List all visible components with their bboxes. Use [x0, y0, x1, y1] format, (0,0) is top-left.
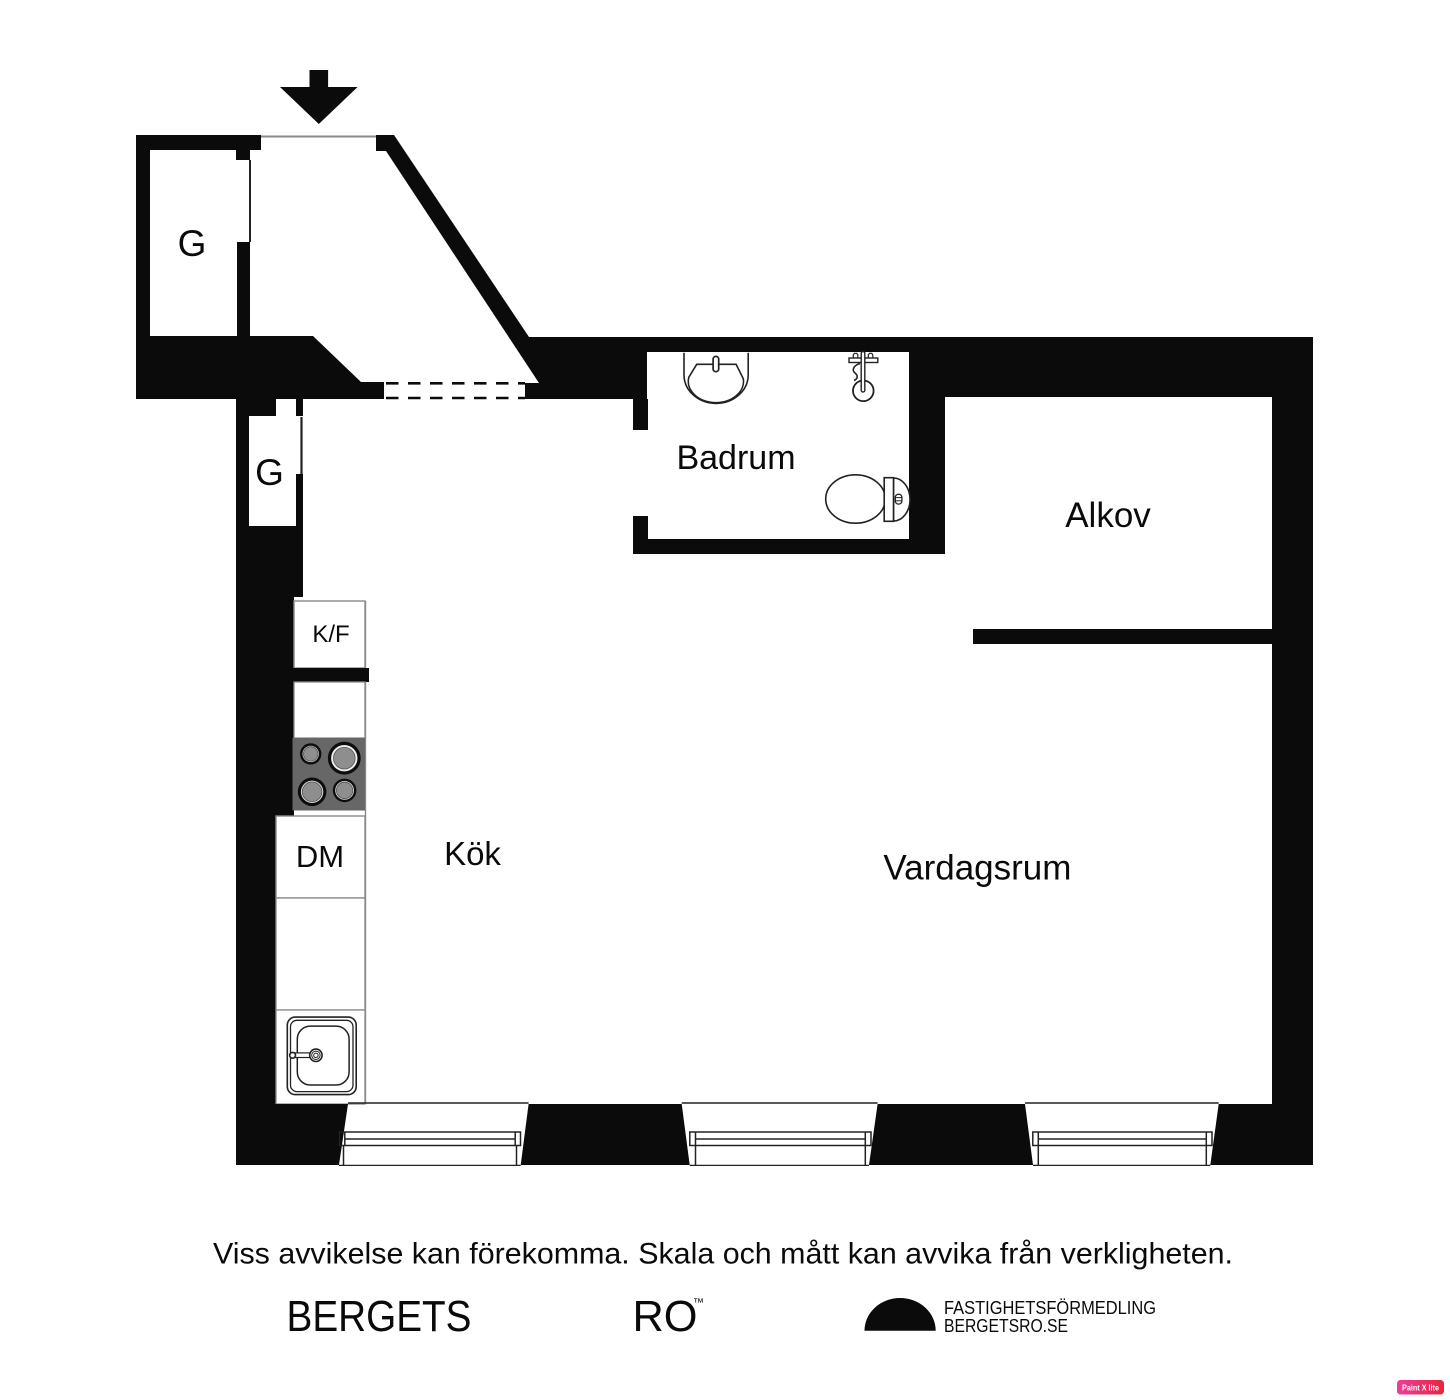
- svg-text:Kök: Kök: [444, 835, 501, 872]
- svg-text:Paint X lite: Paint X lite: [1402, 1384, 1439, 1393]
- svg-text:G: G: [255, 452, 284, 493]
- svg-text:Badrum: Badrum: [676, 439, 795, 477]
- svg-text:K/F: K/F: [312, 621, 349, 648]
- svg-text:BERGETSRO.SE: BERGETSRO.SE: [944, 1315, 1068, 1336]
- svg-text:BERGETS: BERGETS: [287, 1292, 472, 1341]
- svg-text:Alkov: Alkov: [1065, 496, 1151, 535]
- svg-text:Vardagsrum: Vardagsrum: [883, 849, 1071, 888]
- svg-text:DM: DM: [296, 839, 344, 874]
- svg-text:G: G: [178, 223, 207, 264]
- svg-text:™: ™: [693, 1297, 704, 1309]
- svg-text:Viss avvikelse kan förekomma.: Viss avvikelse kan förekomma. Skala och …: [213, 1238, 1233, 1271]
- svg-text:RO: RO: [633, 1292, 698, 1341]
